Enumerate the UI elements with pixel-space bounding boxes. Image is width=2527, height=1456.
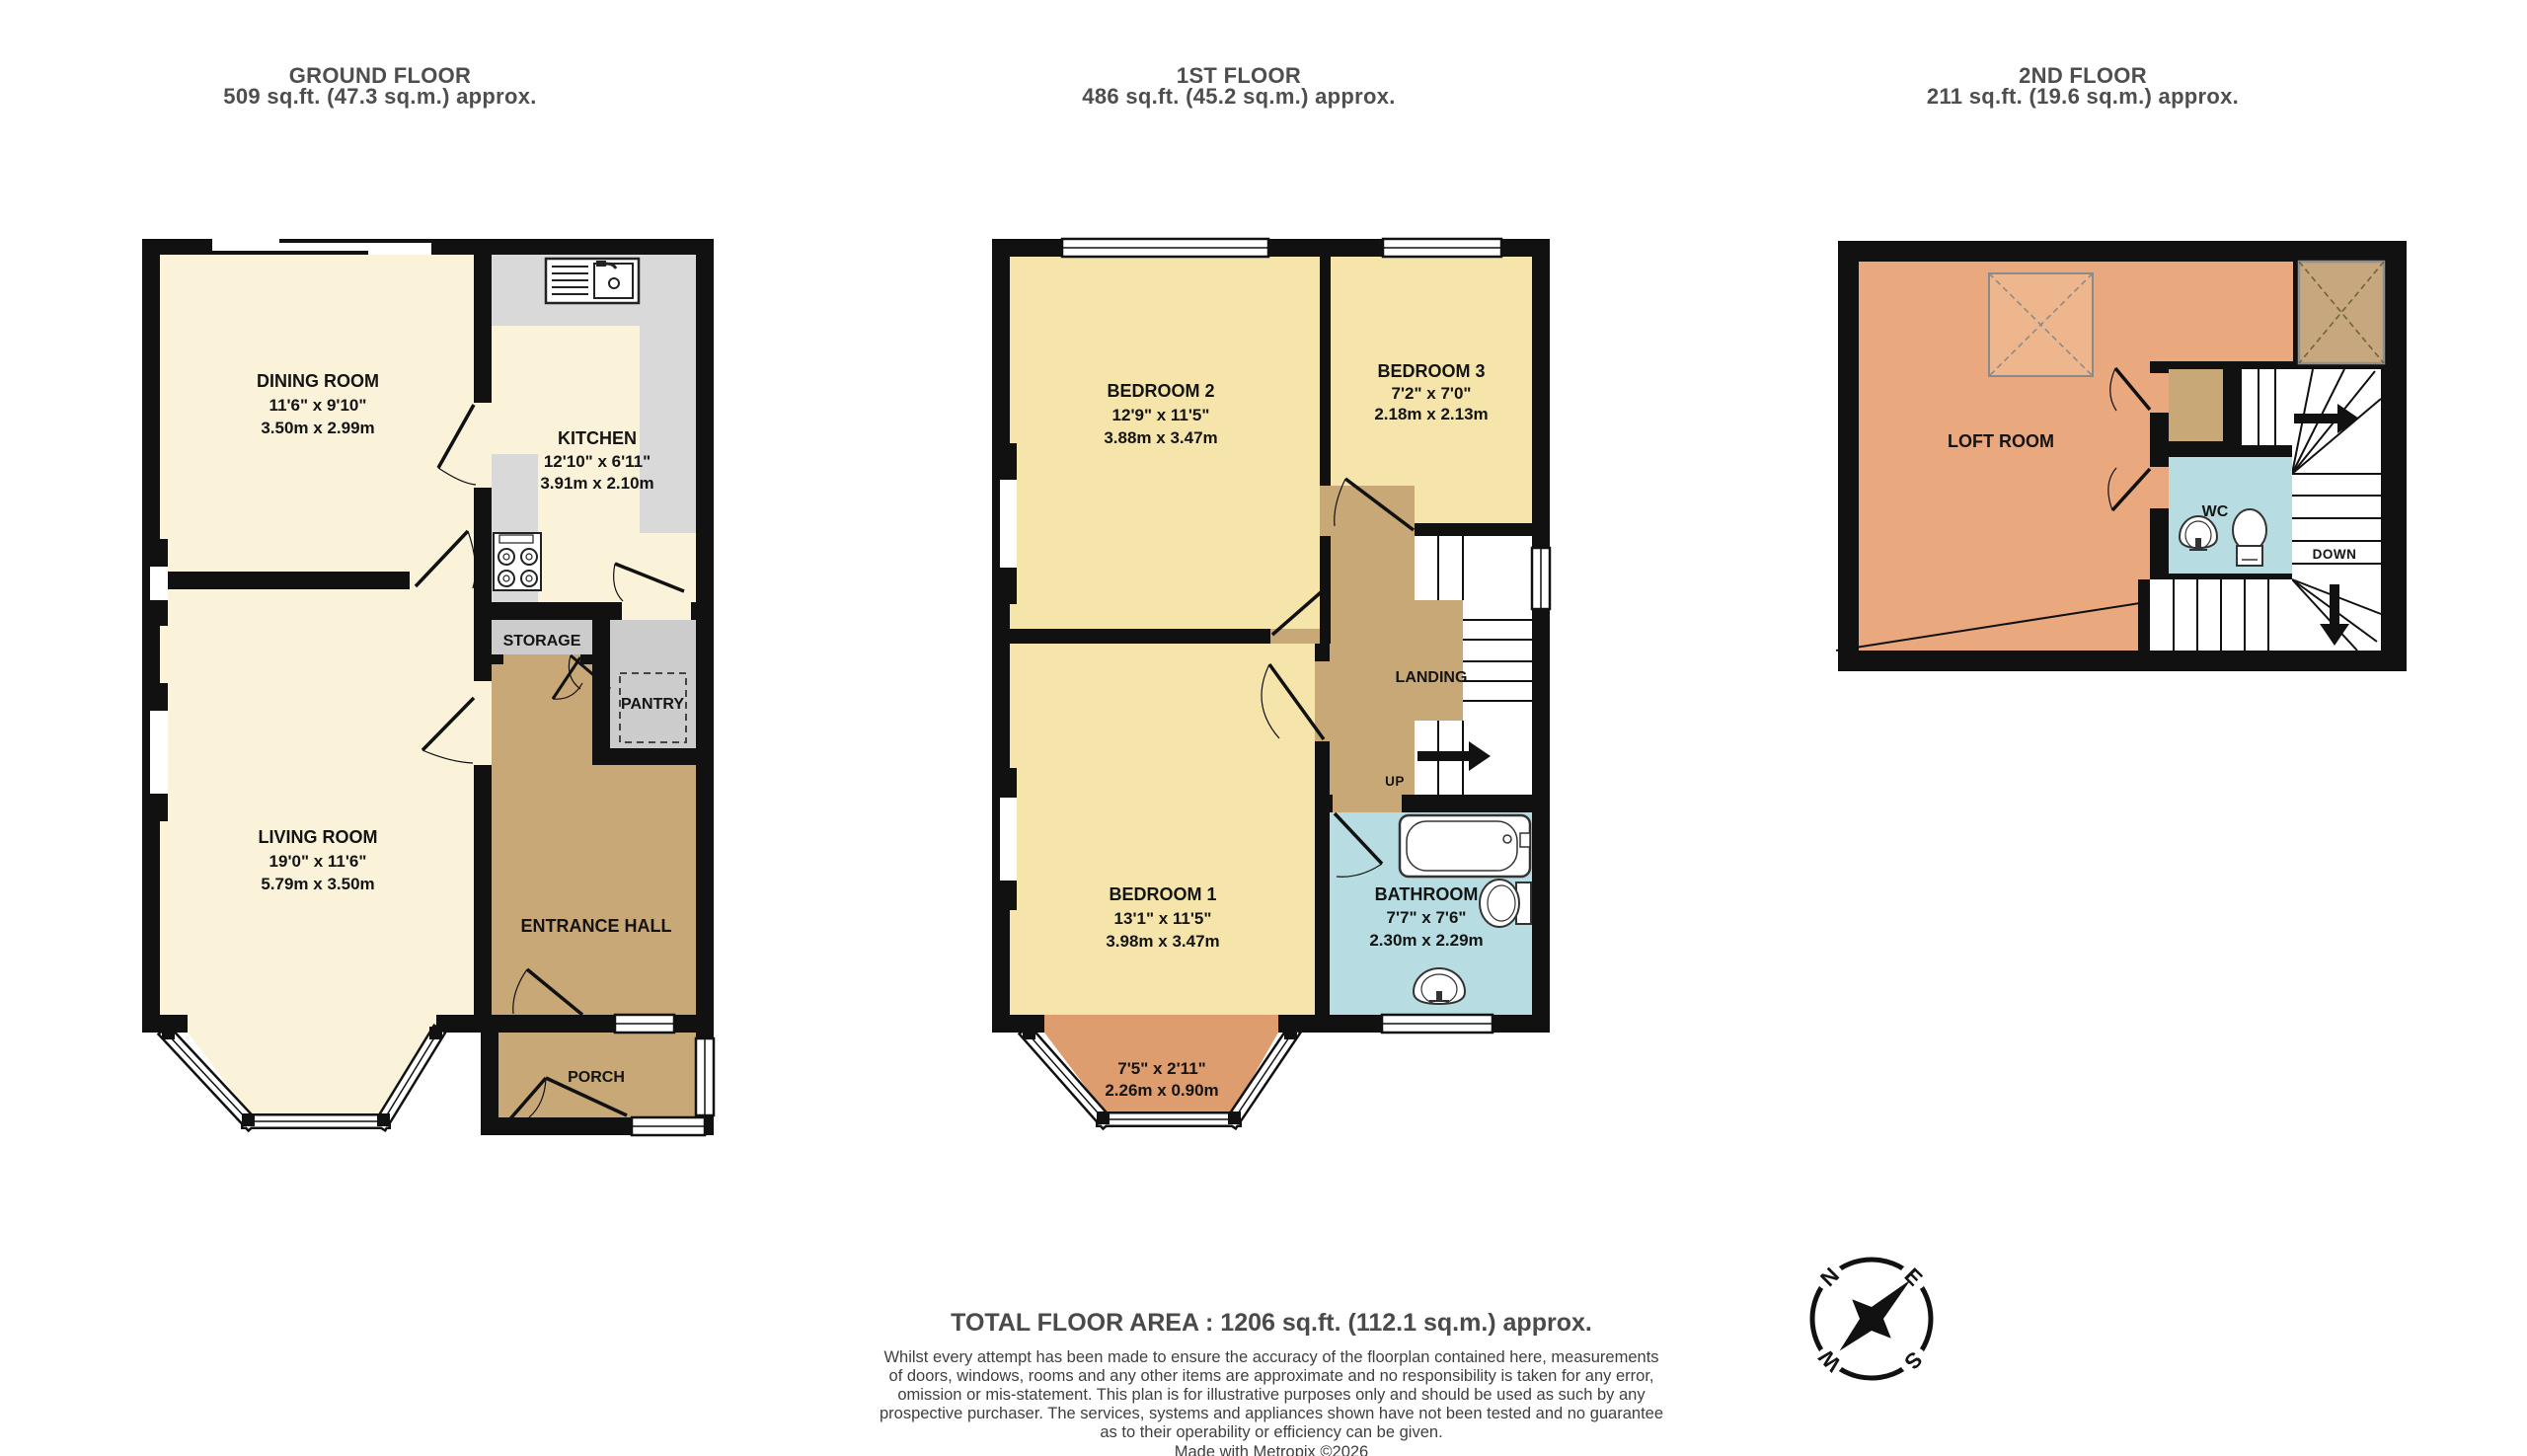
- bedroom3-window: [1383, 239, 1501, 257]
- first-floor-header: 1ST FLOOR 486 sq.ft. (45.2 sq.m.) approx…: [1041, 65, 1436, 107]
- bedroom1-label: BEDROOM 1: [1109, 884, 1216, 904]
- landing-label: LANDING: [1396, 669, 1468, 686]
- entrance-hall-label: ENTRANCE HALL: [521, 916, 672, 936]
- porch-bottom-window: [632, 1117, 705, 1135]
- kitchen-counter-right: [640, 326, 696, 533]
- living-room-dims-ft: 19'0" x 11'6": [269, 852, 367, 871]
- ground-floor-header: GROUND FLOOR 509 sq.ft. (47.3 sq.m.) app…: [183, 65, 577, 107]
- living-room-dims-m: 5.79m x 3.50m: [261, 875, 374, 893]
- compass-star: [1840, 1279, 1911, 1350]
- made-with-credit: Made with Metropix ©2026: [728, 1443, 1814, 1456]
- bedroom3-dims-m: 2.18m x 2.13m: [1374, 405, 1488, 423]
- dining-room-label: DINING ROOM: [257, 371, 379, 391]
- storage-jamb-right: [580, 654, 592, 664]
- disclaimer-line: omission or mis-statement. This plan is …: [728, 1386, 1814, 1405]
- total-floor-area: TOTAL FLOOR AREA : 1206 sq.ft. (112.1 sq…: [728, 1309, 1814, 1338]
- bedroom3-dims-ft: 7'2" x 7'0": [1392, 384, 1472, 403]
- kitchen-hall-doorway: [622, 602, 691, 620]
- kitchen-label: KITCHEN: [558, 428, 637, 448]
- bathtub-icon: [1400, 815, 1530, 877]
- ground-floor-plan: DINING ROOM 11'6" x 9'10" 3.50m x 2.99m …: [138, 227, 730, 1145]
- wc-door-gap: [2150, 467, 2169, 508]
- wc-area: [2169, 457, 2292, 574]
- bedroom3-label: BEDROOM 3: [1377, 361, 1485, 381]
- ground-floor-area: 509 sq.ft. (47.3 sq.m.) approx.: [183, 86, 577, 107]
- bathroom-dims-m: 2.30m x 2.29m: [1369, 931, 1483, 950]
- dining-room-dims-ft: 11'6" x 9'10": [269, 396, 367, 415]
- wc-toilet-icon: [2233, 509, 2266, 566]
- wc-sink-icon: [2180, 516, 2217, 550]
- toilet-icon: [1480, 880, 1531, 927]
- wc-label: WC: [2202, 503, 2229, 520]
- bathroom-window: [1382, 1015, 1493, 1033]
- loft-door-gap: [2150, 373, 2169, 413]
- disclaimer-line: as to their operability or efficiency ca…: [728, 1423, 1814, 1442]
- dining-room-dims-m: 3.50m x 2.99m: [261, 419, 374, 437]
- bedroom2-dims-ft: 12'9" x 11'5": [1112, 406, 1210, 424]
- second-floor-header: 2ND FLOOR 211 sq.ft. (19.6 sq.m.) approx…: [1885, 65, 2280, 107]
- kitchen-dims-ft: 12'10" x 6'11": [544, 452, 651, 471]
- second-floor-title: 2ND FLOOR: [1885, 65, 2280, 86]
- porch-side-window: [696, 1038, 714, 1115]
- ground-floor-title: GROUND FLOOR: [183, 65, 577, 86]
- kitchen-dims-m: 3.91m x 2.10m: [540, 474, 653, 493]
- skylight-icon: [1989, 273, 2093, 376]
- porch-label: PORCH: [568, 1069, 625, 1086]
- compass-icon: N E S W: [1797, 1244, 1954, 1402]
- dining-kitchen-doorway: [474, 403, 492, 488]
- second-floor-plan: LOFT ROOM WC DOWN: [1836, 227, 2418, 681]
- disclaimer-line: Whilst every attempt has been made to en…: [728, 1348, 1814, 1367]
- front-door: [615, 1015, 674, 1033]
- bedroom1-dims-ft: 13'1" x 11'5": [1114, 909, 1212, 928]
- up-label: UP: [1385, 774, 1405, 789]
- first-floor-title: 1ST FLOOR: [1041, 65, 1436, 86]
- second-floor-area: 211 sq.ft. (19.6 sq.m.) approx.: [1885, 86, 2280, 107]
- bay-dims-ft: 7'5" x 2'11": [1117, 1059, 1205, 1078]
- storage-jamb-left: [492, 654, 503, 664]
- down-label: DOWN: [2313, 547, 2357, 562]
- rooflight-icon: [2299, 262, 2384, 363]
- first-floor-area: 486 sq.ft. (45.2 sq.m.) approx.: [1041, 86, 1436, 107]
- pantry-label: PANTRY: [621, 696, 684, 713]
- bedroom2-window: [1062, 239, 1268, 257]
- stairs-window: [1532, 548, 1550, 609]
- disclaimer: Whilst every attempt has been made to en…: [728, 1348, 1814, 1442]
- disclaimer-line: prospective purchaser. The services, sys…: [728, 1405, 1814, 1423]
- living-hall-doorway: [474, 681, 492, 765]
- bedroom2-dims-m: 3.88m x 3.47m: [1104, 428, 1217, 447]
- pantry-area: [610, 620, 696, 748]
- bedroom1-dims-m: 3.98m x 3.47m: [1106, 932, 1219, 951]
- first-floor-plan: BEDROOM 2 12'9" x 11'5" 3.88m x 3.47m BE…: [987, 227, 1579, 1145]
- bathroom-label: BATHROOM: [1375, 884, 1479, 904]
- living-bay-window: [162, 1015, 442, 1126]
- kitchen-sink-icon: [546, 259, 639, 303]
- floorplan-page: GROUND FLOOR 509 sq.ft. (47.3 sq.m.) app…: [0, 0, 2527, 1456]
- bedroom2-label: BEDROOM 2: [1107, 381, 1214, 401]
- bay-dims-m: 2.26m x 0.90m: [1105, 1081, 1218, 1100]
- loft-stair-landing: [2169, 369, 2223, 441]
- disclaimer-line: of doors, windows, rooms and any other i…: [728, 1367, 1814, 1386]
- storage-label: STORAGE: [503, 633, 581, 650]
- living-room-area: [160, 589, 474, 1015]
- stove-icon: [494, 533, 541, 590]
- bathroom-dims-ft: 7'7" x 7'6": [1387, 908, 1467, 927]
- bedroom1-area: [1010, 644, 1315, 1015]
- loft-room-label: LOFT ROOM: [1948, 431, 2054, 451]
- dining-window: [212, 239, 434, 255]
- living-room-label: LIVING ROOM: [259, 827, 378, 847]
